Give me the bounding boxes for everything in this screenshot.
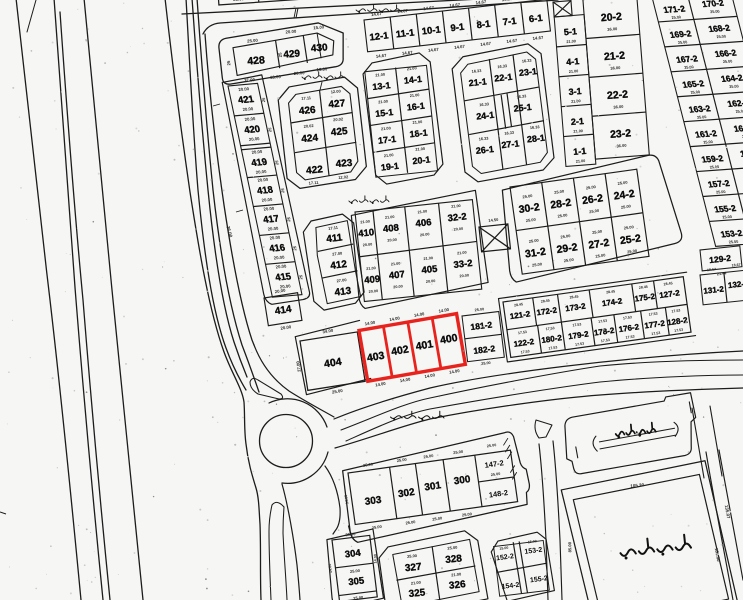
svg-text:169-2: 169-2 bbox=[669, 28, 693, 39]
svg-text:21.00: 21.00 bbox=[569, 69, 579, 74]
svg-text:4-1: 4-1 bbox=[566, 56, 580, 67]
svg-text:25.00: 25.00 bbox=[697, 115, 707, 120]
svg-text:22-2: 22-2 bbox=[607, 88, 629, 102]
svg-text:132-2: 132-2 bbox=[728, 279, 743, 290]
svg-text:21.00: 21.00 bbox=[576, 159, 586, 164]
svg-text:20.00: 20.00 bbox=[238, 86, 250, 92]
svg-text:20.00: 20.00 bbox=[244, 116, 256, 122]
svg-text:164-2: 164-2 bbox=[720, 72, 743, 83]
svg-text:36.00: 36.00 bbox=[616, 143, 627, 149]
svg-text:21.00: 21.00 bbox=[384, 152, 394, 158]
svg-text:28-1: 28-1 bbox=[526, 133, 545, 145]
svg-text:33-2: 33-2 bbox=[453, 258, 473, 271]
svg-text:17-1: 17-1 bbox=[378, 134, 397, 146]
svg-text:26-1: 26-1 bbox=[475, 144, 494, 156]
svg-text:420: 420 bbox=[243, 124, 261, 136]
svg-text:21.00: 21.00 bbox=[415, 146, 425, 152]
svg-text:36.00: 36.00 bbox=[610, 65, 621, 71]
svg-text:23-2: 23-2 bbox=[610, 127, 632, 141]
svg-text:16-1: 16-1 bbox=[406, 101, 425, 113]
svg-text:20.00: 20.00 bbox=[263, 206, 275, 212]
svg-text:85.00: 85.00 bbox=[567, 541, 572, 552]
svg-text:12-1: 12-1 bbox=[369, 30, 390, 43]
svg-text:423: 423 bbox=[335, 158, 353, 170]
svg-text:405: 405 bbox=[421, 264, 439, 277]
svg-text:422: 422 bbox=[306, 164, 324, 176]
svg-text:428: 428 bbox=[247, 54, 266, 67]
svg-text:20-1: 20-1 bbox=[412, 154, 431, 166]
svg-text:325: 325 bbox=[408, 587, 426, 600]
svg-text:425: 425 bbox=[330, 126, 348, 138]
svg-text:20-2: 20-2 bbox=[600, 11, 622, 25]
svg-text:21.00: 21.00 bbox=[409, 92, 419, 98]
svg-text:25.00: 25.00 bbox=[710, 10, 720, 15]
svg-text:162-2: 162-2 bbox=[726, 97, 743, 108]
svg-text:6-1: 6-1 bbox=[528, 13, 544, 26]
svg-text:27-1: 27-1 bbox=[501, 138, 520, 150]
svg-text:410: 410 bbox=[358, 227, 375, 240]
svg-text:20.00: 20.00 bbox=[257, 177, 269, 183]
svg-text:406: 406 bbox=[415, 217, 432, 230]
svg-text:25.00: 25.00 bbox=[671, 15, 681, 20]
svg-text:25.00: 25.00 bbox=[684, 65, 694, 70]
svg-text:20.00: 20.00 bbox=[242, 106, 254, 112]
svg-text:165-2: 165-2 bbox=[681, 78, 705, 89]
svg-text:15-1: 15-1 bbox=[375, 107, 394, 119]
svg-text:13.00: 13.00 bbox=[316, 66, 328, 72]
svg-text:412: 412 bbox=[330, 259, 348, 272]
svg-text:9-1: 9-1 bbox=[450, 22, 466, 35]
svg-text:2-1: 2-1 bbox=[571, 116, 585, 127]
svg-text:25.00: 25.00 bbox=[703, 140, 713, 145]
svg-text:20.00: 20.00 bbox=[251, 149, 263, 155]
svg-text:12.02: 12.02 bbox=[338, 174, 349, 180]
svg-text:23-1: 23-1 bbox=[518, 66, 537, 78]
svg-text:25.00: 25.00 bbox=[353, 595, 364, 600]
svg-text:415: 415 bbox=[274, 271, 293, 283]
svg-text:20.00: 20.00 bbox=[273, 255, 285, 261]
svg-text:1-1: 1-1 bbox=[573, 146, 587, 157]
svg-text:20.00: 20.00 bbox=[285, 29, 297, 35]
svg-text:426: 426 bbox=[298, 105, 316, 117]
svg-text:14-1: 14-1 bbox=[403, 74, 422, 86]
svg-text:407: 407 bbox=[388, 269, 405, 282]
svg-text:14.00: 14.00 bbox=[373, 554, 377, 564]
svg-text:430: 430 bbox=[311, 42, 329, 54]
svg-text:36.00: 36.00 bbox=[607, 26, 618, 32]
svg-text:427: 427 bbox=[328, 98, 346, 110]
svg-text:13-1: 13-1 bbox=[372, 80, 391, 92]
svg-text:161-2: 161-2 bbox=[694, 128, 718, 139]
svg-text:19-1: 19-1 bbox=[380, 161, 399, 173]
svg-text:25.00: 25.00 bbox=[722, 215, 732, 220]
svg-text:17.11: 17.11 bbox=[308, 180, 319, 186]
svg-text:305: 305 bbox=[348, 575, 366, 588]
svg-text:409: 409 bbox=[364, 274, 381, 287]
svg-text:36.00: 36.00 bbox=[613, 104, 624, 110]
svg-text:25.00: 25.00 bbox=[247, 38, 259, 44]
svg-text:12.00: 12.00 bbox=[330, 88, 341, 94]
svg-text:7-1: 7-1 bbox=[502, 16, 518, 29]
svg-text:157-2: 157-2 bbox=[707, 178, 731, 189]
svg-text:159-2: 159-2 bbox=[700, 153, 724, 164]
svg-text:25.00: 25.00 bbox=[728, 240, 738, 245]
svg-text:21.00: 21.00 bbox=[412, 119, 422, 125]
svg-text:20.00: 20.00 bbox=[267, 226, 279, 232]
svg-text:21.00: 21.00 bbox=[566, 39, 576, 44]
svg-text:24-1: 24-1 bbox=[476, 110, 495, 122]
svg-text:411: 411 bbox=[326, 232, 344, 245]
svg-text:20.00: 20.00 bbox=[269, 235, 281, 241]
svg-text:153-2: 153-2 bbox=[719, 228, 743, 239]
svg-text:25.00: 25.00 bbox=[716, 34, 726, 39]
svg-text:155-2: 155-2 bbox=[713, 203, 737, 214]
svg-text:20.00: 20.00 bbox=[255, 169, 267, 175]
svg-text:21.00: 21.00 bbox=[375, 72, 385, 78]
svg-text:327: 327 bbox=[404, 562, 422, 575]
svg-text:5-1: 5-1 bbox=[564, 26, 578, 37]
svg-text:21.00: 21.00 bbox=[378, 99, 388, 105]
svg-text:21.00: 21.00 bbox=[571, 99, 581, 104]
svg-text:25.00: 25.00 bbox=[690, 90, 700, 95]
svg-text:160-2: 160-2 bbox=[733, 122, 743, 133]
svg-text:20.00: 20.00 bbox=[248, 136, 260, 142]
svg-text:10-1: 10-1 bbox=[421, 24, 442, 37]
svg-text:8-1: 8-1 bbox=[476, 19, 492, 32]
svg-text:421: 421 bbox=[237, 94, 256, 106]
svg-text:25.00: 25.00 bbox=[709, 165, 719, 170]
svg-text:21.00: 21.00 bbox=[381, 125, 391, 131]
svg-text:13.00: 13.00 bbox=[270, 74, 282, 80]
svg-text:170-2: 170-2 bbox=[701, 0, 725, 9]
svg-text:25.00: 25.00 bbox=[677, 40, 687, 45]
svg-text:418: 418 bbox=[256, 185, 274, 197]
svg-text:429: 429 bbox=[283, 48, 301, 60]
svg-text:25.00: 25.00 bbox=[735, 109, 743, 114]
svg-text:15.00: 15.00 bbox=[313, 24, 325, 30]
svg-text:21.00: 21.00 bbox=[407, 65, 417, 71]
svg-text:25.00: 25.00 bbox=[722, 59, 732, 64]
svg-text:32-2: 32-2 bbox=[447, 211, 467, 224]
svg-text:25.00: 25.00 bbox=[729, 84, 739, 89]
svg-text:168-2: 168-2 bbox=[707, 23, 731, 34]
svg-text:408: 408 bbox=[382, 223, 399, 236]
svg-text:419: 419 bbox=[250, 157, 268, 169]
svg-text:18-1: 18-1 bbox=[409, 128, 428, 140]
svg-text:413: 413 bbox=[334, 286, 352, 299]
svg-text:20.00: 20.00 bbox=[275, 264, 287, 270]
svg-text:20.00: 20.00 bbox=[261, 197, 273, 203]
svg-text:17.11: 17.11 bbox=[301, 95, 312, 101]
svg-text:417: 417 bbox=[262, 214, 280, 226]
svg-text:304: 304 bbox=[344, 548, 362, 561]
svg-text:171-2: 171-2 bbox=[662, 3, 686, 14]
svg-text:3-1: 3-1 bbox=[568, 86, 582, 97]
svg-text:163-2: 163-2 bbox=[688, 103, 712, 114]
svg-text:20.02: 20.02 bbox=[333, 116, 344, 122]
svg-text:167-2: 167-2 bbox=[675, 53, 699, 64]
svg-text:21-2: 21-2 bbox=[604, 50, 626, 64]
svg-text:20.02: 20.02 bbox=[303, 123, 314, 129]
svg-text:21-1: 21-1 bbox=[468, 76, 487, 88]
svg-text:424: 424 bbox=[301, 133, 319, 145]
svg-text:25-1: 25-1 bbox=[513, 102, 532, 114]
svg-text:11-1: 11-1 bbox=[395, 27, 415, 40]
svg-text:21.00: 21.00 bbox=[573, 129, 583, 134]
svg-text:20.00: 20.00 bbox=[294, 70, 306, 76]
svg-text:25.00: 25.00 bbox=[716, 190, 726, 195]
svg-text:166-2: 166-2 bbox=[714, 48, 738, 59]
svg-text:416: 416 bbox=[268, 242, 286, 254]
svg-text:326: 326 bbox=[448, 579, 466, 592]
svg-text:22-1: 22-1 bbox=[494, 72, 513, 84]
